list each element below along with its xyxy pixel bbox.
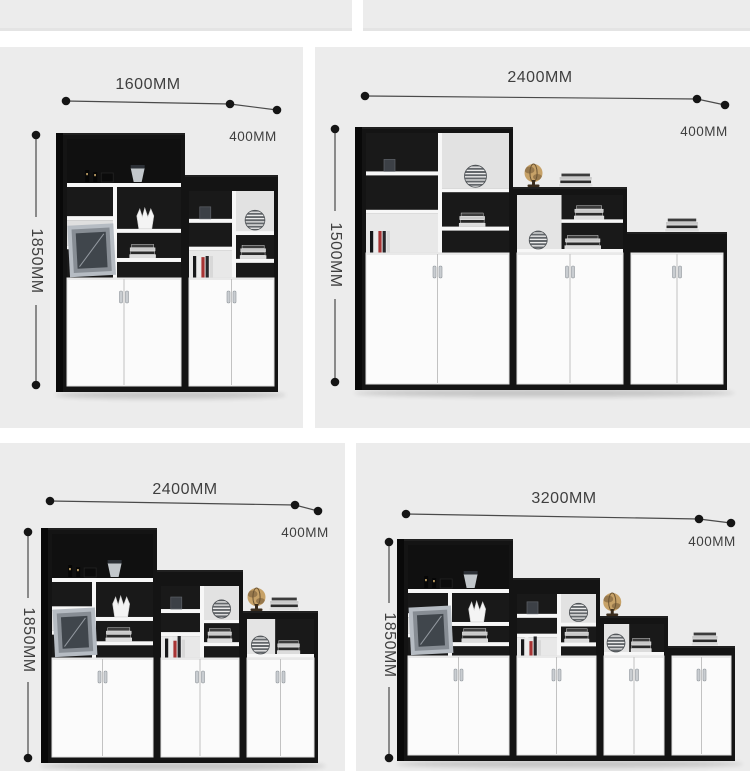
height-dimension-label: 1850MM (26, 201, 46, 321)
width-dimension-label: 2400MM (125, 480, 245, 500)
cabinet-group (55, 133, 286, 399)
cabinet-illustration-2400mm-1500h (315, 47, 750, 428)
size-panel-2400mm-1500h: 2400MM 400MM 1500MM (315, 47, 750, 428)
width-dimension-label: 3200MM (504, 489, 624, 509)
depth-dimension-label: 400MM (193, 127, 313, 147)
depth-dimension-label: 400MM (644, 122, 750, 142)
height-dimension-label: 1850MM (379, 585, 399, 705)
previous-section-edge-right (363, 0, 750, 31)
depth-dimension-label: 400MM (652, 532, 750, 552)
height-dimension-label: 1500MM (325, 195, 345, 315)
width-dimension-label: 2400MM (480, 68, 600, 88)
cabinet-group (354, 127, 735, 397)
cabinet-group (396, 539, 743, 768)
size-panel-2400mm-1850h: 2400MM 400MM 1850MM (0, 443, 345, 771)
depth-dimension-label: 400MM (245, 523, 365, 543)
size-panel-3200mm: 3200MM 400MM 1850MM (356, 443, 750, 771)
width-dimension-label: 1600MM (88, 75, 208, 95)
cabinet-group (40, 528, 326, 770)
previous-section-edge-left (0, 0, 352, 31)
size-panel-1600mm: 1600MM 400MM 1850MM (0, 47, 303, 428)
height-dimension-label: 1850MM (18, 580, 38, 700)
product-size-diagram: 1600MM 400MM 1850MM 2400MM 400MM 1500MM … (0, 0, 750, 771)
